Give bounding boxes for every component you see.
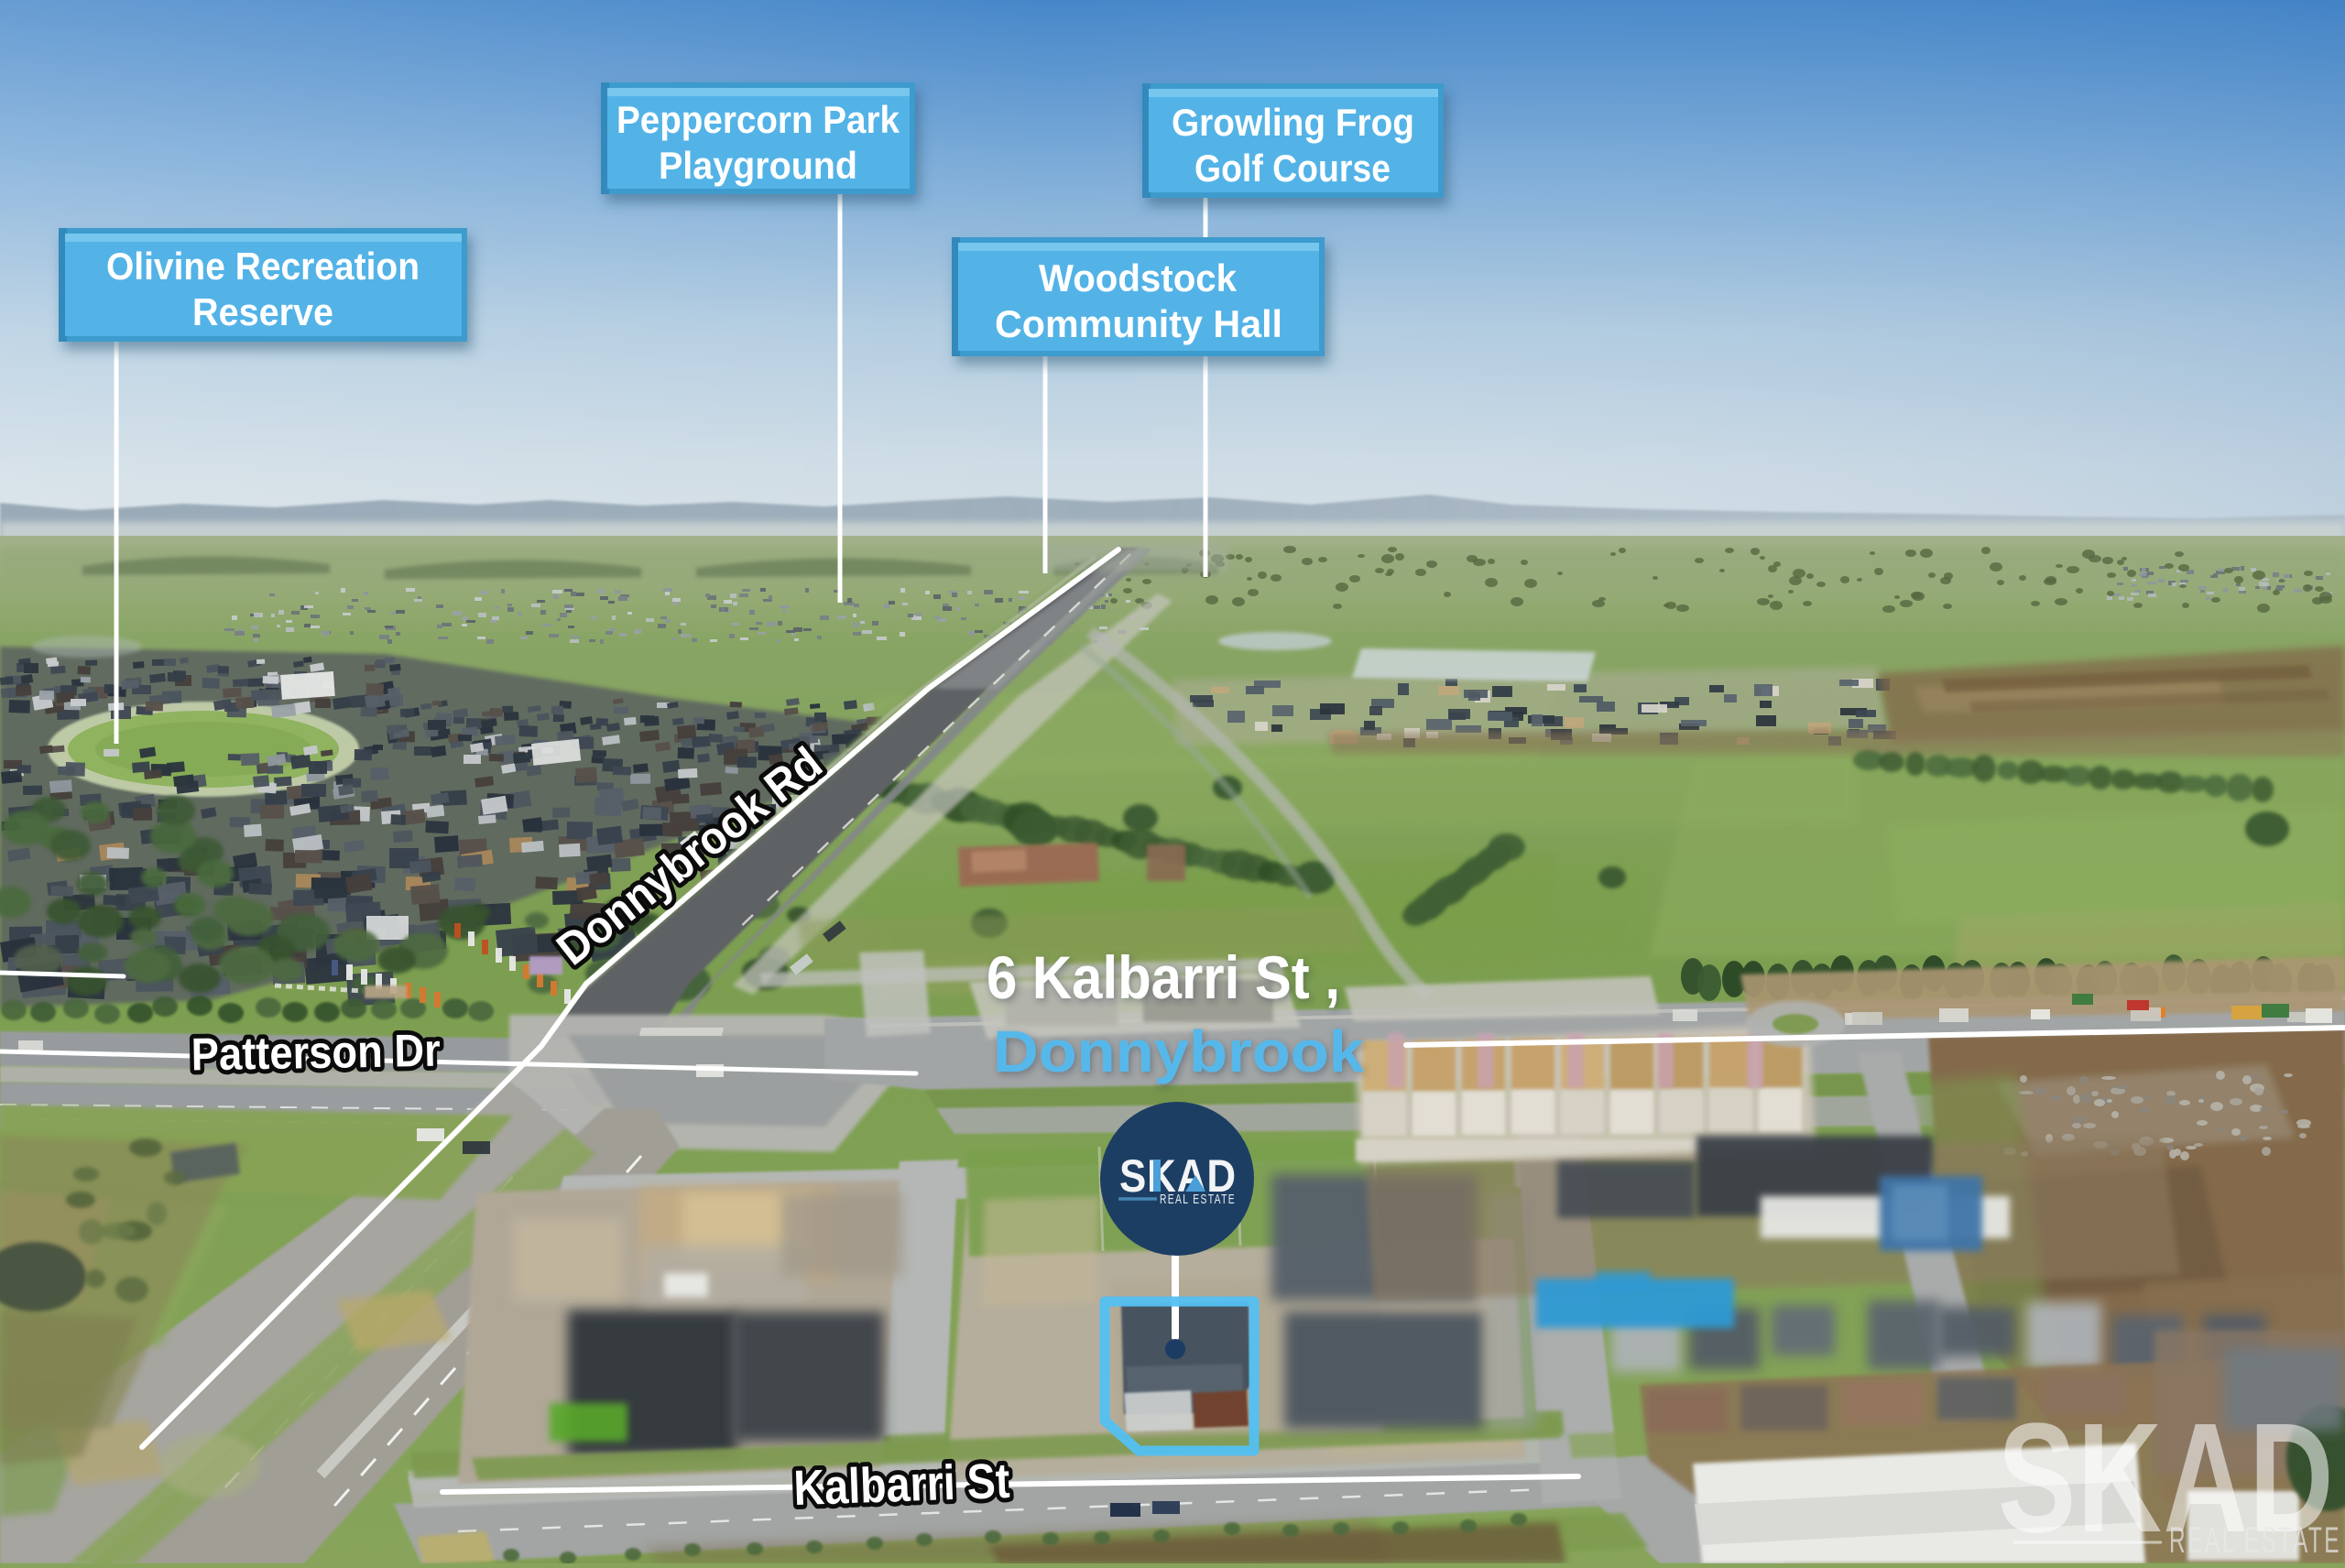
svg-text:Kalbarri St: Kalbarri St [792, 1454, 1010, 1516]
svg-text:Golf Course: Golf Course [1194, 147, 1391, 190]
svg-text:Playground: Playground [659, 144, 857, 187]
svg-text:REAL ESTATE: REAL ESTATE [1160, 1192, 1236, 1207]
svg-text:Peppercorn Park: Peppercorn Park [616, 98, 900, 141]
svg-text:6 Kalbarri St ,: 6 Kalbarri St , [987, 943, 1340, 1011]
svg-text:Community Hall: Community Hall [995, 302, 1282, 345]
svg-text:Woodstock: Woodstock [1039, 256, 1238, 299]
svg-text:REAL ESTATE: REAL ESTATE [2169, 1520, 2341, 1561]
svg-text:Donnybrook: Donnybrook [993, 1018, 1364, 1084]
svg-text:Growling Frog: Growling Frog [1172, 101, 1414, 144]
svg-text:Reserve: Reserve [192, 290, 333, 333]
svg-text:Olivine Recreation: Olivine Recreation [106, 245, 420, 288]
svg-text:Patterson Dr: Patterson Dr [191, 1025, 441, 1081]
